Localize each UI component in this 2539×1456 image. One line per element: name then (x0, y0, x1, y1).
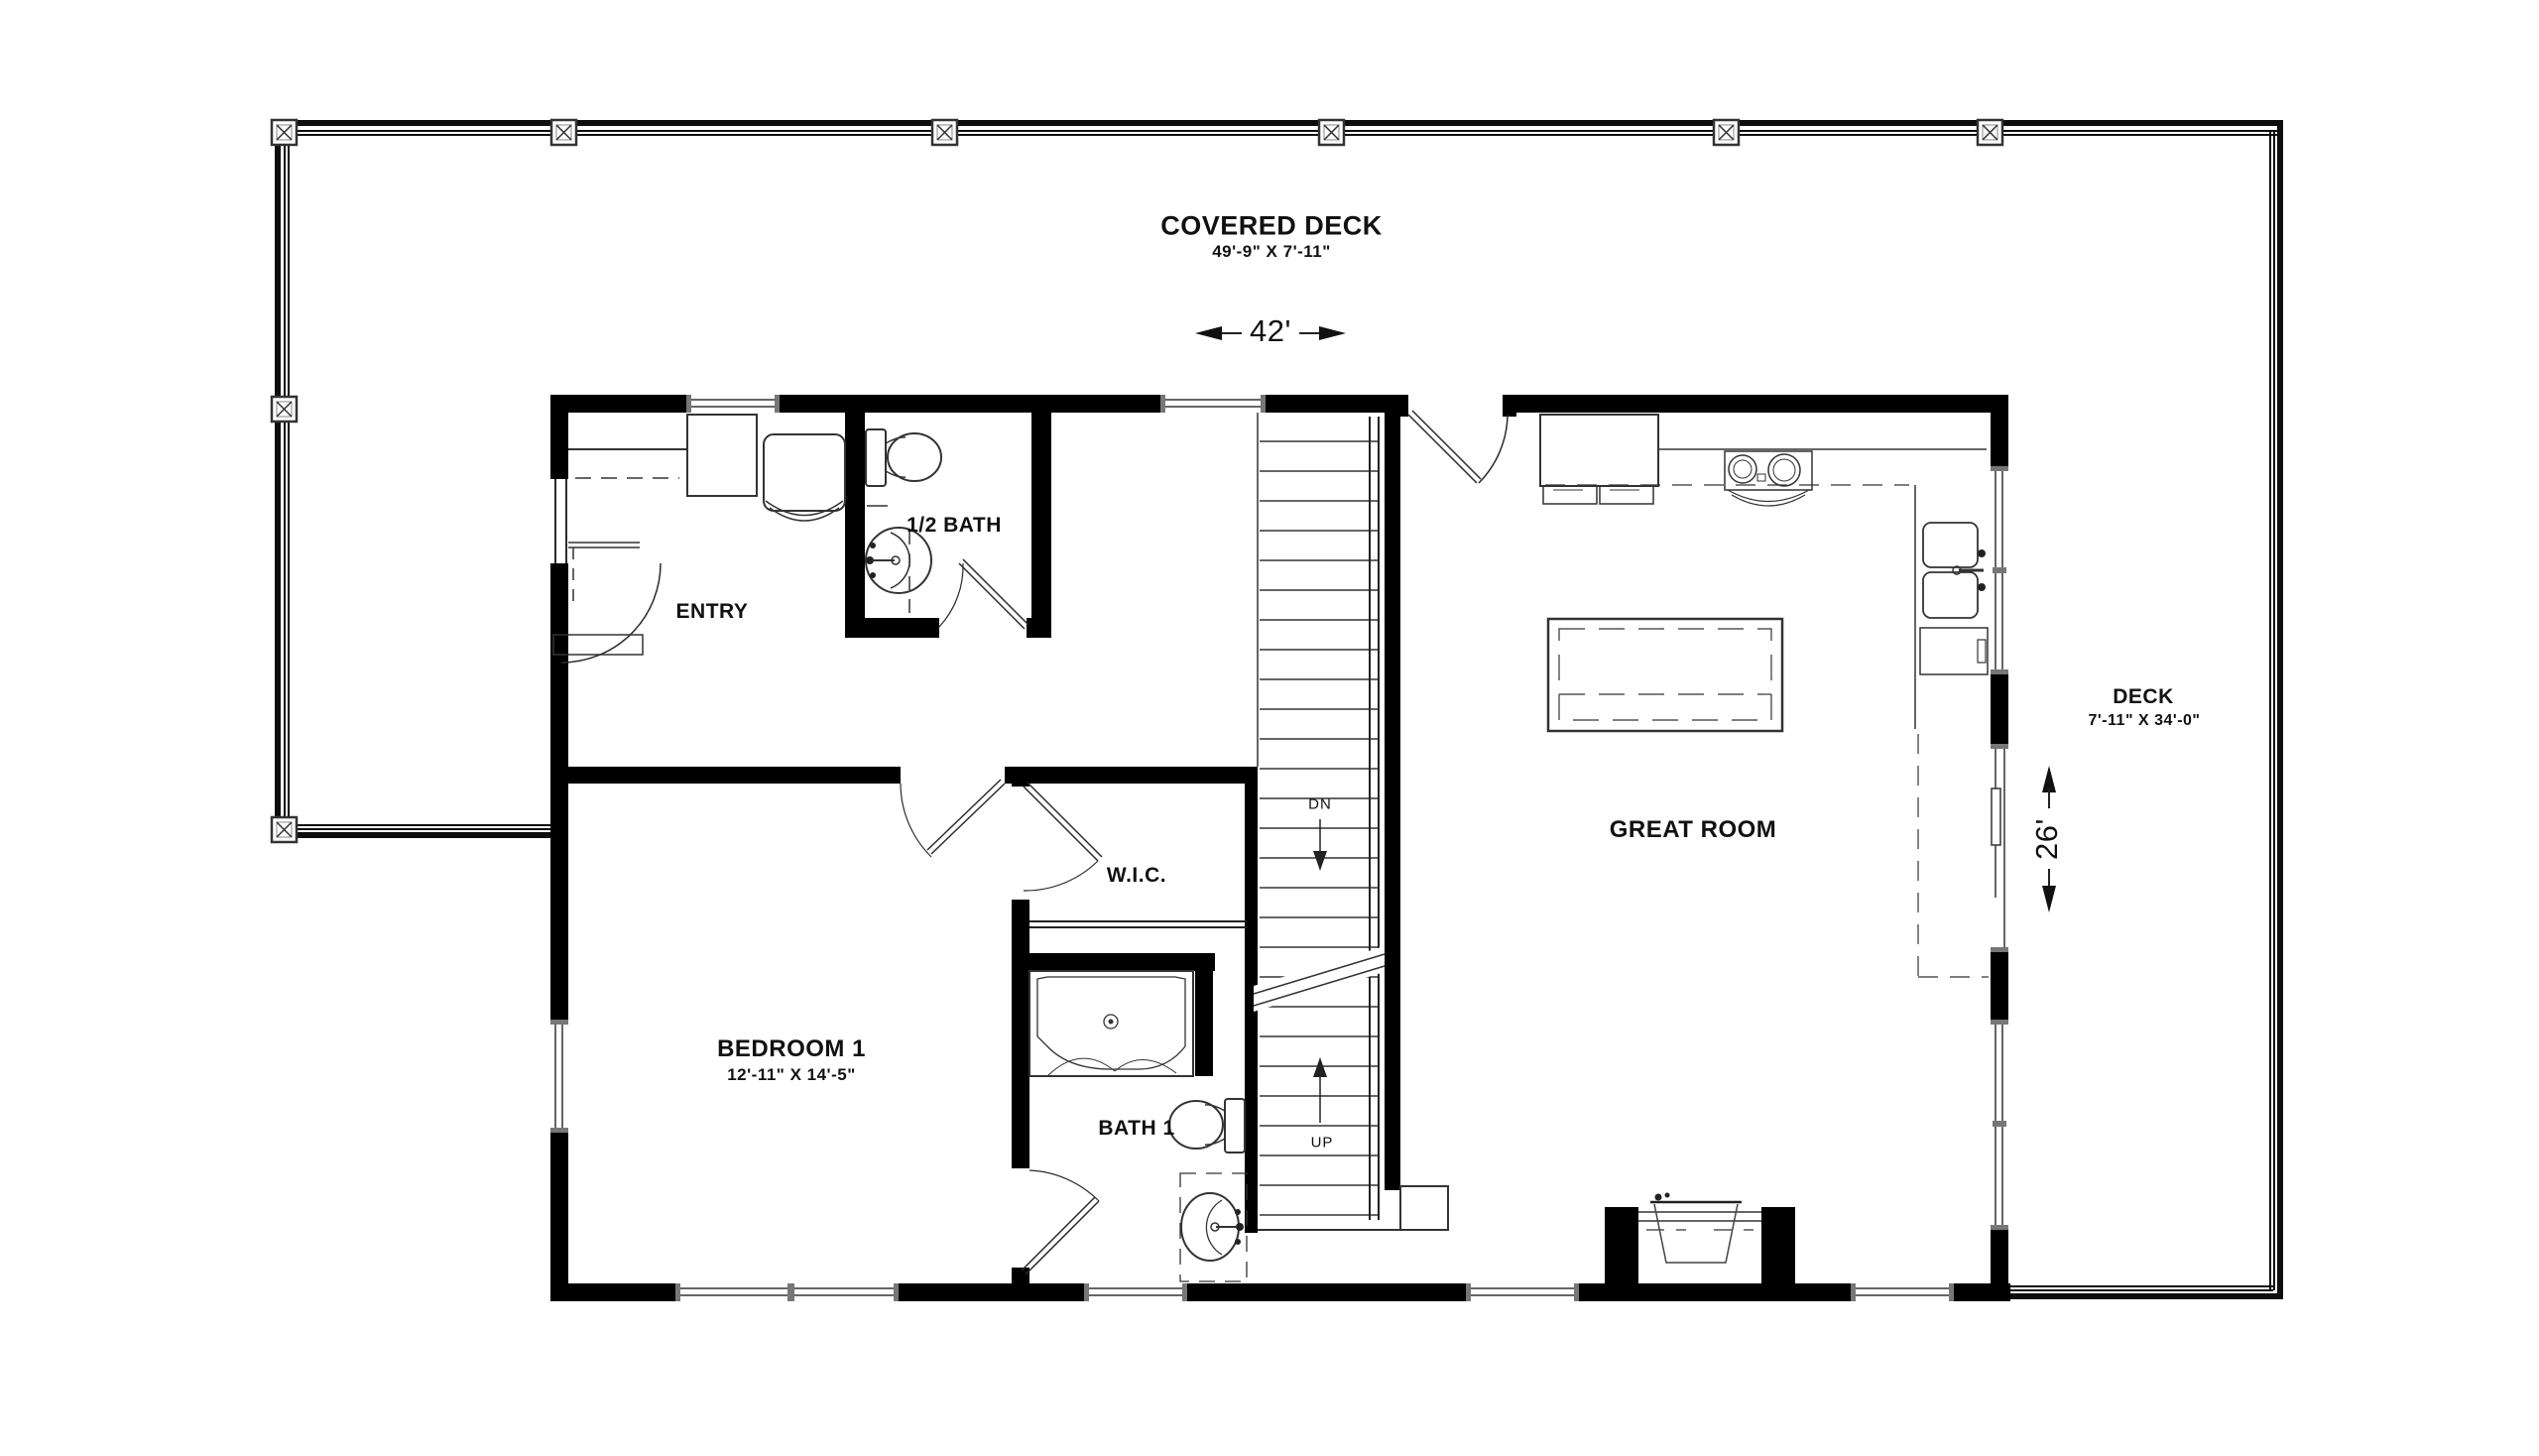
toilet (1169, 1099, 1245, 1153)
window (1160, 395, 1266, 413)
kitchen-island (1548, 619, 1782, 731)
kitchen (1540, 415, 1989, 977)
window (1851, 1283, 1954, 1301)
deck-post-icon (272, 120, 297, 145)
base-cabinet-dashed (1918, 734, 1989, 977)
sliding-door (1991, 744, 2008, 952)
wood-stove-icon (1654, 1204, 1738, 1263)
deck-entry-door (1408, 411, 1508, 483)
window (675, 1283, 899, 1301)
deck-rail-left (275, 120, 281, 838)
window (1084, 1283, 1187, 1301)
room-dims-covered-deck: 49'-9" X 7'-11" (1212, 242, 1331, 262)
window (1991, 466, 2008, 674)
deck-post-icon (272, 817, 297, 842)
stair-break (1254, 946, 1385, 1012)
stair-treads (1260, 441, 1379, 1215)
vanity-sink (1180, 1173, 1247, 1281)
floor-plan-page: COVERED DECK 49'-9" X 7'-11" 42' 26' DEC… (0, 0, 2539, 1456)
room-label-entry: ENTRY (676, 600, 749, 624)
half-bath-door (939, 559, 1028, 629)
wic-door (1024, 783, 1102, 891)
room-label-deck: DECK (2113, 685, 2174, 709)
room-dims-deck: 7'-11" X 34'-0" (2088, 712, 2200, 730)
deck-rail-right-bottom (2008, 1293, 2283, 1299)
room-label-great-room: GREAT ROOM (1610, 816, 1777, 844)
wic-partition (1029, 920, 1247, 928)
deck-post-icon (551, 120, 576, 145)
refrigerator-icon (1540, 415, 1658, 504)
bath1-door (1022, 1170, 1099, 1274)
room-label-bedroom1: BEDROOM 1 (717, 1035, 866, 1063)
dimension-width: 42' (1250, 313, 1291, 349)
stair-railing (1370, 417, 1379, 1220)
window (550, 1020, 568, 1133)
window (1466, 1283, 1579, 1301)
dimension-depth: 26' (2029, 818, 2065, 860)
stairs-down-label: DN (1308, 796, 1332, 813)
toilet (866, 429, 941, 486)
stair-landing-step (1400, 1186, 1448, 1230)
interior-walls (568, 395, 1516, 1283)
shower (1029, 971, 1193, 1076)
room-label-wic: W.I.C. (1107, 864, 1166, 888)
range-icon (1725, 451, 1812, 506)
stairs (1254, 413, 1448, 1230)
bedroom-door (901, 780, 1005, 857)
room-label-half-bath: 1/2 BATH (907, 514, 1002, 538)
deck-post-icon (1319, 120, 1344, 145)
deck-post-icon (932, 120, 957, 145)
armchair (764, 434, 845, 521)
fireplace (1605, 1193, 1795, 1284)
deck-rail-right (2277, 120, 2283, 1299)
window (1991, 1020, 2008, 1230)
stairs-up-label: UP (1311, 1135, 1334, 1152)
deck-post-icon (1978, 120, 2002, 145)
room-dims-bedroom1: 12'-11" X 14'-5" (727, 1065, 856, 1085)
kitchen-sink-icon (1923, 523, 1986, 618)
window (686, 395, 780, 413)
room-label-covered-deck: COVERED DECK (1160, 211, 1383, 242)
stairs-up-arrow-icon (1313, 1057, 1327, 1123)
dishwasher-icon (1920, 628, 1988, 674)
deck-rail-left-bottom (275, 832, 552, 838)
deck-post-icon (1714, 120, 1739, 145)
deck-post-icon (272, 397, 297, 422)
deck-posts (272, 120, 2002, 842)
stairs-down-arrow-icon (1313, 819, 1327, 871)
room-label-bath1: BATH 1 (1098, 1117, 1174, 1141)
